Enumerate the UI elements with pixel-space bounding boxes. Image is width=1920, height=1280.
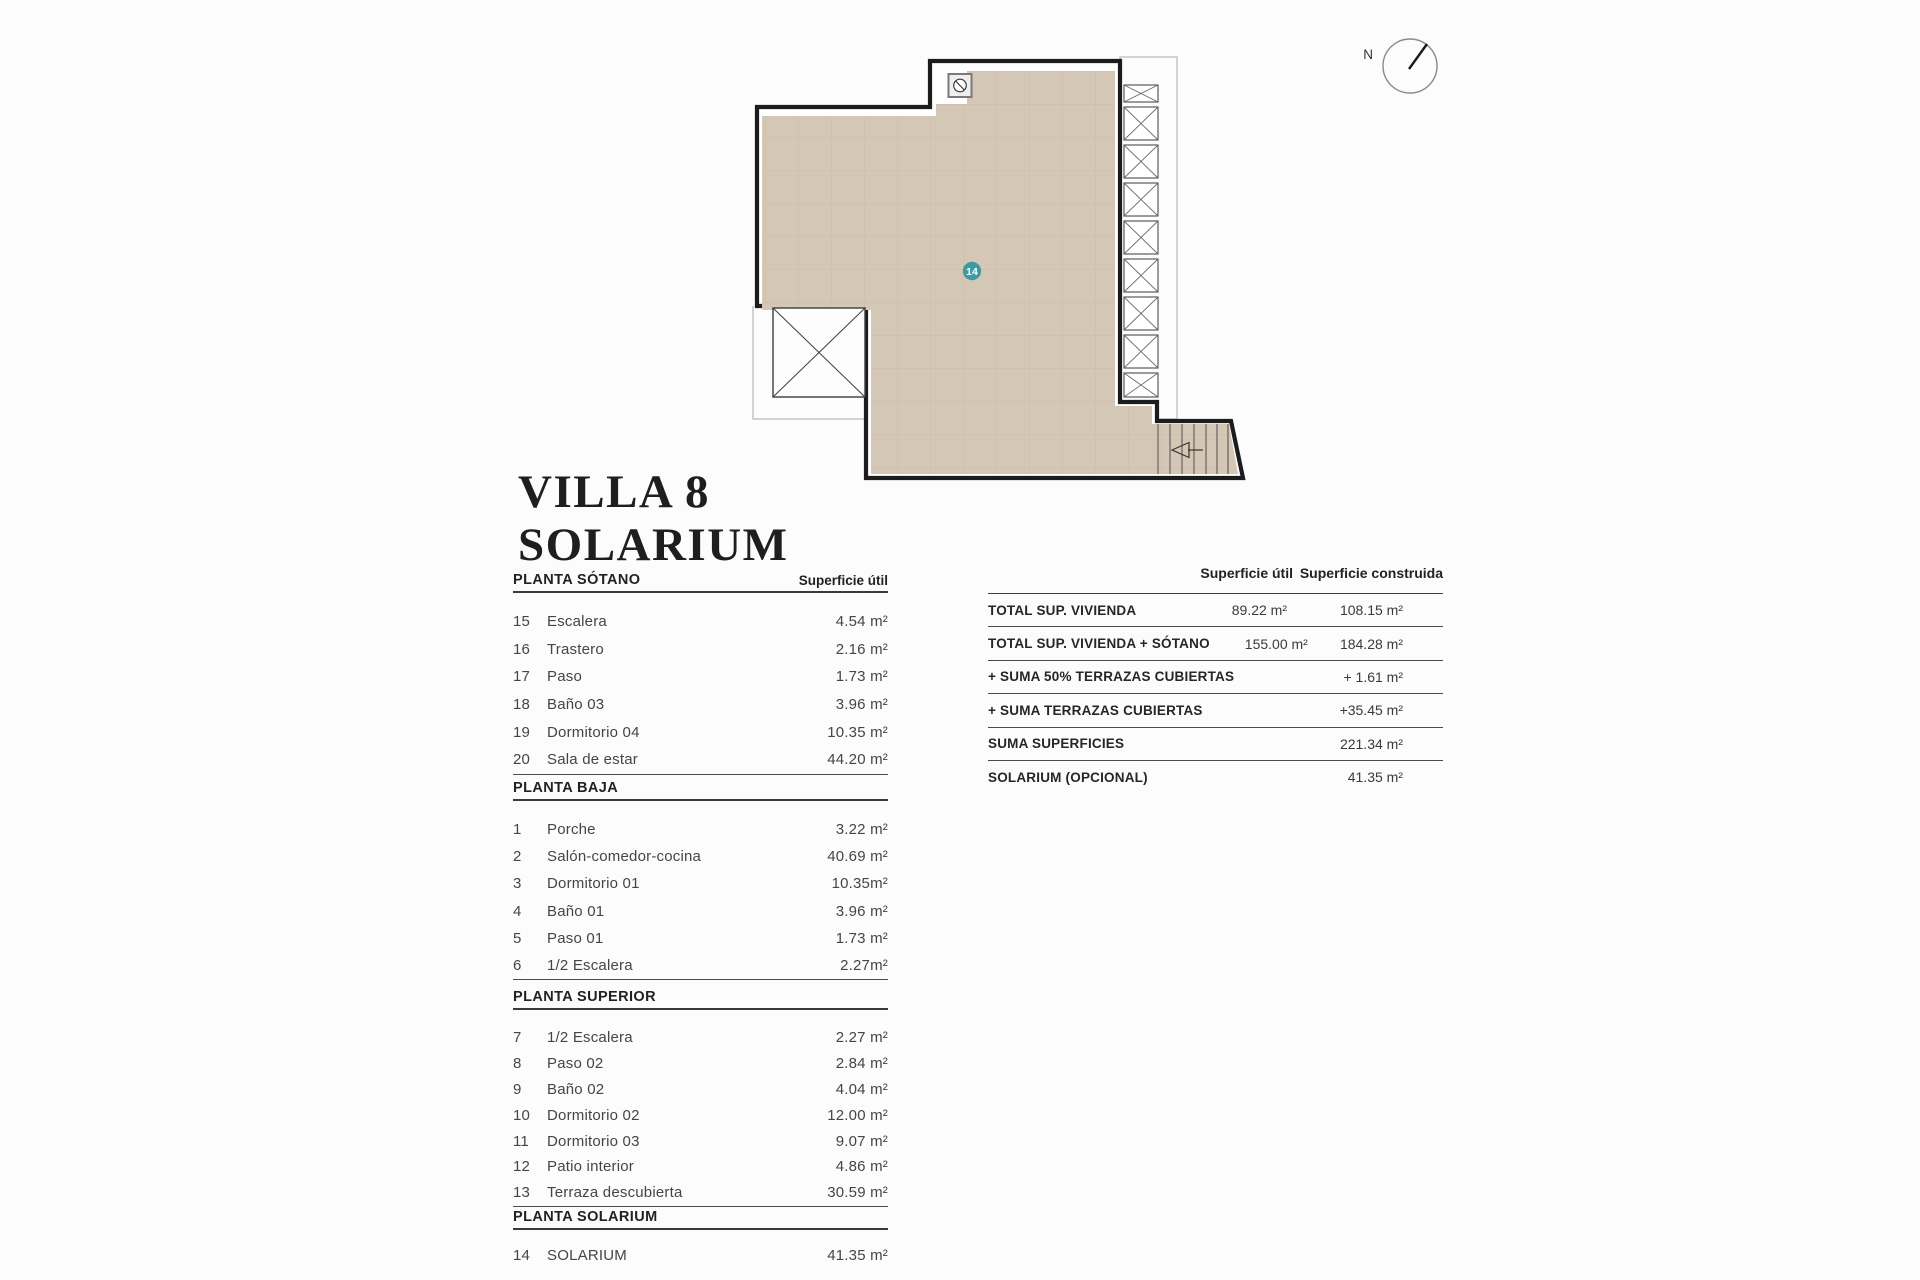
- section-divider: [513, 774, 888, 775]
- room-name: Baño 01: [547, 903, 836, 920]
- room-area: 12.00 m²: [827, 1107, 888, 1124]
- north-compass-icon: N: [1363, 39, 1437, 93]
- room-name: Baño 03: [547, 696, 836, 713]
- table-row: 12Patio interior4.86 m²: [513, 1154, 888, 1180]
- room-area: 9.07 m²: [836, 1133, 888, 1150]
- section-divider: [513, 1206, 888, 1207]
- summary-row: SOLARIUM (OPCIONAL)41.35 m²: [988, 761, 1443, 793]
- summary-row: + SUMA TERRAZAS CUBIERTAS+35.45 m²: [988, 694, 1443, 727]
- room-area: 3.22 m²: [836, 821, 888, 838]
- room-name: Paso 01: [547, 930, 836, 947]
- summary-label: TOTAL SUP. VIVIENDA: [988, 603, 1166, 618]
- summary-label: + SUMA TERRAZAS CUBIERTAS: [988, 703, 1203, 718]
- table-row: 15Escalera4.54 m²: [513, 608, 888, 636]
- room-name: 1/2 Escalera: [547, 1029, 836, 1046]
- room-number: 9: [513, 1081, 547, 1098]
- table-row: 3Dormitorio 0110.35m²: [513, 870, 888, 897]
- room-area: 41.35 m²: [827, 1247, 888, 1264]
- table-row: 17Paso1.73 m²: [513, 663, 888, 691]
- summary-label: SOLARIUM (OPCIONAL): [988, 770, 1166, 785]
- floor-section-title: PLANTA SUPERIOR: [513, 989, 656, 1005]
- room-name: Dormitorio 01: [547, 875, 832, 892]
- table-row: 19Dormitorio 0410.35 m²: [513, 718, 888, 746]
- summary-value-built: + 1.61 m²: [1325, 669, 1443, 685]
- summary-row: TOTAL SUP. VIVIENDA89.22 m²108.15 m²: [988, 594, 1443, 627]
- floor-section: PLANTA SOLARIUM14SOLARIUM41.35 m²: [513, 1209, 888, 1268]
- room-area: 2.27m²: [840, 957, 888, 974]
- table-row: 61/2 Escalera2.27m²: [513, 952, 888, 979]
- summary-value-util: 155.00 m²: [1210, 636, 1314, 652]
- summary-header-built: Superficie construida: [1293, 565, 1443, 581]
- room-area: 2.84 m²: [836, 1055, 888, 1072]
- room-name: Baño 02: [547, 1081, 836, 1098]
- room-area: 4.04 m²: [836, 1081, 888, 1098]
- summary-header-util: Superficie útil: [1166, 565, 1293, 581]
- room-number: 12: [513, 1158, 547, 1175]
- room-name: Escalera: [547, 613, 836, 630]
- room-number: 4: [513, 903, 547, 920]
- room-area: 40.69 m²: [827, 848, 888, 865]
- table-row: 16Trastero2.16 m²: [513, 636, 888, 664]
- room-number: 7: [513, 1029, 547, 1046]
- room-area: 1.73 m²: [836, 668, 888, 685]
- floor-section: PLANTA SÓTANOSuperficie útil15Escalera4.…: [513, 572, 888, 775]
- room-name: Porche: [547, 821, 836, 838]
- floor-tile-grid: [762, 71, 1238, 474]
- solarium-floor-plan: 14 N: [0, 0, 1920, 1280]
- floor-section-header: PLANTA SOLARIUM: [513, 1209, 888, 1230]
- room-number: 14: [513, 1247, 547, 1264]
- room-area: 2.16 m²: [836, 641, 888, 658]
- room-name: Terraza descubierta: [547, 1184, 827, 1201]
- room-number: 1: [513, 821, 547, 838]
- room-area: 30.59 m²: [827, 1184, 888, 1201]
- room-number: 3: [513, 875, 547, 892]
- table-row: 9Baño 024.04 m²: [513, 1077, 888, 1103]
- room-number: 13: [513, 1184, 547, 1201]
- skylight-icon: [949, 74, 972, 97]
- table-row: 14SOLARIUM41.35 m²: [513, 1242, 888, 1268]
- table-row: 20Sala de estar44.20 m²: [513, 746, 888, 774]
- room-number: 16: [513, 641, 547, 658]
- summary-label: + SUMA 50% TERRAZAS CUBIERTAS: [988, 669, 1234, 684]
- summary-value-built: 184.28 m²: [1314, 636, 1443, 652]
- table-row: 11Dormitorio 039.07 m²: [513, 1128, 888, 1154]
- room-name: Paso: [547, 668, 836, 685]
- summary-value-built: 41.35 m²: [1293, 769, 1443, 785]
- room-area: 4.54 m²: [836, 613, 888, 630]
- room-number: 11: [513, 1133, 547, 1150]
- floor-section-title: PLANTA SÓTANO: [513, 572, 640, 588]
- room-number: 20: [513, 751, 547, 768]
- room-area: 1.73 m²: [836, 930, 888, 947]
- room-name: Dormitorio 02: [547, 1107, 827, 1124]
- summary-row: + SUMA 50% TERRAZAS CUBIERTAS+ 1.61 m²: [988, 661, 1443, 694]
- summary-value-built: 221.34 m²: [1293, 736, 1443, 752]
- room-name: SOLARIUM: [547, 1247, 827, 1264]
- pergola-beams: [1124, 85, 1158, 397]
- table-row: 2Salón-comedor-cocina40.69 m²: [513, 843, 888, 870]
- summary-row: SUMA SUPERFICIES221.34 m²: [988, 728, 1443, 761]
- summary-label: TOTAL SUP. VIVIENDA + SÓTANO: [988, 636, 1210, 651]
- floor-section: PLANTA SUPERIOR71/2 Escalera2.27 m²8Paso…: [513, 989, 888, 1207]
- table-row: 13Terraza descubierta30.59 m²: [513, 1180, 888, 1206]
- table-row: 10Dormitorio 0212.00 m²: [513, 1102, 888, 1128]
- page-title: VILLA 8 SOLARIUM: [518, 466, 789, 571]
- summary-label: SUMA SUPERFICIES: [988, 736, 1166, 751]
- summary-row: TOTAL SUP. VIVIENDA + SÓTANO155.00 m²184…: [988, 627, 1443, 660]
- floor-section-header: PLANTA SUPERIOR: [513, 989, 888, 1010]
- room-name: Salón-comedor-cocina: [547, 848, 827, 865]
- room-area: 3.96 m²: [836, 903, 888, 920]
- room-number: 17: [513, 668, 547, 685]
- surface-summary-table: Superficie útil Superficie construida TO…: [988, 565, 1443, 793]
- room-14-badge: 14: [963, 262, 981, 280]
- room-number: 15: [513, 613, 547, 630]
- floor-section-header: PLANTA SÓTANOSuperficie útil: [513, 572, 888, 593]
- room-number: 10: [513, 1107, 547, 1124]
- floor-section-header: PLANTA BAJA: [513, 780, 888, 801]
- room-name: Patio interior: [547, 1158, 836, 1175]
- page-title-line1: VILLA 8: [518, 466, 789, 519]
- room-name: Paso 02: [547, 1055, 836, 1072]
- room-area: 2.27 m²: [836, 1029, 888, 1046]
- room-name: Dormitorio 04: [547, 724, 827, 741]
- summary-value-built: +35.45 m²: [1310, 702, 1443, 718]
- patio-void: [773, 308, 865, 397]
- room-number: 18: [513, 696, 547, 713]
- table-row: 1Porche3.22 m²: [513, 816, 888, 843]
- room-number: 6: [513, 957, 547, 974]
- room-area: 10.35m²: [832, 875, 888, 892]
- page-title-line2: SOLARIUM: [518, 519, 789, 572]
- table-row: 5Paso 011.73 m²: [513, 925, 888, 952]
- summary-header-row: Superficie útil Superficie construida: [988, 565, 1443, 594]
- room-area: 10.35 m²: [827, 724, 888, 741]
- svg-text:N: N: [1363, 47, 1373, 62]
- table-row: 4Baño 013.96 m²: [513, 898, 888, 925]
- table-row: 8Paso 022.84 m²: [513, 1051, 888, 1077]
- area-column-header: Superficie útil: [799, 573, 888, 588]
- room-number: 5: [513, 930, 547, 947]
- summary-value-util: 89.22 m²: [1166, 602, 1293, 618]
- room-number: 2: [513, 848, 547, 865]
- section-divider: [513, 979, 888, 980]
- room-area: 44.20 m²: [827, 751, 888, 768]
- room-name: 1/2 Escalera: [547, 957, 840, 974]
- summary-value-built: 108.15 m²: [1293, 602, 1443, 618]
- table-row: 18Baño 033.96 m²: [513, 691, 888, 719]
- room-number: 19: [513, 724, 547, 741]
- floor-section: PLANTA BAJA1Porche3.22 m²2Salón-comedor-…: [513, 780, 888, 980]
- room-name: Sala de estar: [547, 751, 827, 768]
- room-name: Trastero: [547, 641, 836, 658]
- svg-text:14: 14: [966, 266, 978, 278]
- table-row: 71/2 Escalera2.27 m²: [513, 1025, 888, 1051]
- room-name: Dormitorio 03: [547, 1133, 836, 1150]
- floor-section-title: PLANTA BAJA: [513, 780, 618, 796]
- room-number: 8: [513, 1055, 547, 1072]
- room-area: 4.86 m²: [836, 1158, 888, 1175]
- room-area: 3.96 m²: [836, 696, 888, 713]
- floor-section-title: PLANTA SOLARIUM: [513, 1209, 658, 1225]
